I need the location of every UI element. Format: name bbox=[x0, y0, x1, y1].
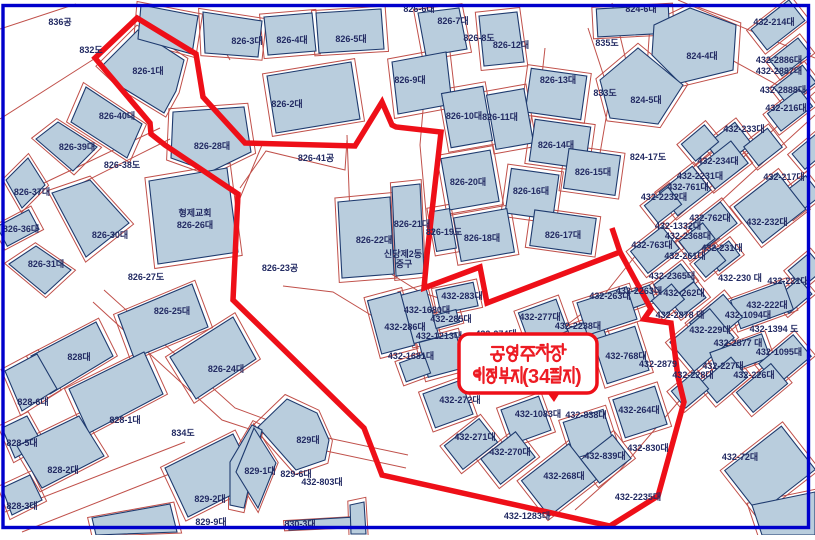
svg-text:432-268대: 432-268대 bbox=[543, 470, 584, 481]
svg-text:432-262대: 432-262대 bbox=[663, 287, 704, 298]
svg-text:432-228대: 432-228대 bbox=[672, 369, 713, 380]
svg-text:826-28대: 826-28대 bbox=[194, 140, 230, 151]
svg-text:중구: 중구 bbox=[396, 259, 413, 269]
svg-text:826-23공: 826-23공 bbox=[262, 263, 298, 273]
svg-text:432-2238대: 432-2238대 bbox=[555, 320, 601, 331]
svg-text:826-19도: 826-19도 bbox=[426, 227, 463, 237]
svg-text:826-39대: 826-39대 bbox=[59, 141, 95, 152]
svg-text:432-2231대: 432-2231대 bbox=[677, 170, 723, 181]
svg-text:432-1094대: 432-1094대 bbox=[725, 309, 771, 320]
svg-text:432-222대: 432-222대 bbox=[746, 299, 787, 310]
svg-text:826-7대: 826-7대 bbox=[437, 15, 468, 26]
svg-text:826-24대: 826-24대 bbox=[208, 363, 244, 374]
svg-text:432-1083대: 432-1083대 bbox=[515, 408, 561, 419]
svg-text:432-230 대: 432-230 대 bbox=[718, 272, 762, 283]
svg-text:826-12대: 826-12대 bbox=[493, 39, 529, 50]
svg-text:826-5대: 826-5대 bbox=[335, 33, 366, 44]
svg-text:828대: 828대 bbox=[67, 351, 90, 362]
svg-text:826-14대: 826-14대 bbox=[538, 139, 574, 150]
svg-text:834도: 834도 bbox=[171, 428, 195, 438]
svg-text:432-229대: 432-229대 bbox=[689, 324, 730, 335]
svg-text:836공: 836공 bbox=[48, 17, 71, 27]
svg-text:826-21대: 826-21대 bbox=[394, 218, 430, 229]
svg-text:432-2887대: 432-2887대 bbox=[756, 65, 802, 76]
svg-text:432-830대: 432-830대 bbox=[627, 442, 668, 453]
svg-text:826-37대: 826-37대 bbox=[14, 186, 50, 197]
svg-text:826-30대: 826-30대 bbox=[92, 229, 128, 240]
svg-text:신당제2동: 신당제2동 bbox=[384, 248, 422, 259]
svg-text:826-31대: 826-31대 bbox=[28, 258, 64, 269]
svg-text:432-283대: 432-283대 bbox=[441, 290, 482, 301]
svg-text:826-25대: 826-25대 bbox=[154, 305, 190, 316]
svg-text:432-1095대: 432-1095대 bbox=[756, 346, 802, 357]
svg-text:826-20대: 826-20대 bbox=[450, 176, 486, 187]
svg-text:432-1394 도: 432-1394 도 bbox=[750, 324, 800, 334]
svg-text:829-2대: 829-2대 bbox=[194, 493, 225, 504]
svg-text:826-10대: 826-10대 bbox=[446, 110, 482, 121]
svg-text:824-5대: 824-5대 bbox=[630, 94, 661, 105]
svg-text:826-36대: 826-36대 bbox=[3, 223, 39, 234]
svg-text:829-6대: 829-6대 bbox=[280, 468, 311, 479]
svg-text:826-22대: 826-22대 bbox=[356, 234, 392, 245]
svg-text:828-3대: 828-3대 bbox=[6, 500, 37, 511]
svg-text:826-18대: 826-18대 bbox=[464, 232, 500, 243]
svg-text:829대: 829대 bbox=[296, 434, 319, 445]
svg-text:432-2235대: 432-2235대 bbox=[615, 491, 661, 502]
svg-text:826-11대: 826-11대 bbox=[482, 111, 518, 122]
svg-text:432-233대: 432-233대 bbox=[723, 123, 764, 134]
svg-text:826-2대: 826-2대 bbox=[271, 98, 302, 109]
svg-text:432-264대: 432-264대 bbox=[618, 404, 659, 415]
svg-text:432-217대: 432-217대 bbox=[763, 171, 804, 182]
svg-text:432-272대: 432-272대 bbox=[439, 394, 480, 405]
svg-text:432-72대: 432-72대 bbox=[722, 451, 758, 462]
svg-text:432-1332대: 432-1332대 bbox=[655, 220, 701, 231]
svg-text:형제교회: 형제교회 bbox=[178, 207, 211, 218]
svg-text:432-839대: 432-839대 bbox=[584, 450, 625, 461]
svg-text:432-226대: 432-226대 bbox=[733, 369, 774, 380]
svg-text:826-40대: 826-40대 bbox=[99, 110, 135, 121]
svg-text:432-761대: 432-761대 bbox=[667, 181, 708, 192]
svg-text:432-768대: 432-768대 bbox=[605, 350, 646, 361]
svg-text:432-216대: 432-216대 bbox=[765, 102, 806, 113]
svg-text:826-16대: 826-16대 bbox=[513, 185, 549, 196]
svg-text:432-231대: 432-231대 bbox=[701, 242, 742, 253]
svg-text:826-15대: 826-15대 bbox=[575, 166, 611, 177]
svg-text:824-4대: 824-4대 bbox=[686, 50, 717, 61]
svg-text:833도: 833도 bbox=[593, 88, 617, 98]
svg-text:828-2대: 828-2대 bbox=[47, 464, 78, 475]
svg-text:432-2878 대: 432-2878 대 bbox=[656, 309, 705, 320]
svg-text:432-285대: 432-285대 bbox=[430, 313, 471, 324]
svg-text:826-13대: 826-13대 bbox=[540, 74, 576, 85]
svg-text:828-5대: 828-5대 bbox=[6, 437, 37, 448]
svg-text:826-17대: 826-17대 bbox=[545, 229, 581, 240]
svg-text:829-1대: 829-1대 bbox=[244, 465, 275, 476]
svg-text:432-838대: 432-838대 bbox=[565, 409, 606, 420]
svg-text:828-6대: 828-6대 bbox=[17, 396, 48, 407]
svg-text:826-8도: 826-8도 bbox=[463, 33, 495, 43]
svg-text:432-2888대: 432-2888대 bbox=[760, 84, 806, 95]
svg-text:826-26대: 826-26대 bbox=[177, 219, 213, 230]
svg-text:828-1대: 828-1대 bbox=[109, 414, 140, 425]
svg-text:432-2886대: 432-2886대 bbox=[756, 54, 802, 65]
svg-text:432-2232대: 432-2232대 bbox=[641, 191, 687, 202]
svg-text:826-9대: 826-9대 bbox=[394, 74, 425, 85]
svg-text:824-17도: 824-17도 bbox=[630, 152, 667, 162]
svg-text:432-261대: 432-261대 bbox=[664, 250, 705, 261]
svg-text:832도: 832도 bbox=[79, 45, 103, 55]
svg-text:826-3대: 826-3대 bbox=[231, 35, 262, 46]
svg-text:432-221대: 432-221대 bbox=[767, 275, 808, 286]
svg-text:432-270대: 432-270대 bbox=[489, 446, 530, 457]
svg-text:826-1대: 826-1대 bbox=[132, 65, 163, 76]
svg-text:826-38도: 826-38도 bbox=[104, 160, 141, 170]
svg-text:826-4대: 826-4대 bbox=[276, 34, 307, 45]
svg-text:835도: 835도 bbox=[595, 38, 619, 48]
svg-text:432-232대: 432-232대 bbox=[746, 216, 787, 227]
svg-text:432-1681대: 432-1681대 bbox=[388, 350, 434, 361]
svg-text:432-763대: 432-763대 bbox=[631, 239, 672, 250]
svg-text:432-1213대: 432-1213대 bbox=[416, 330, 462, 341]
svg-text:432-2365대: 432-2365대 bbox=[649, 270, 695, 281]
svg-text:34: 34 bbox=[528, 366, 551, 388]
svg-text:432-214대: 432-214대 bbox=[753, 16, 794, 27]
svg-text:432-271대: 432-271대 bbox=[454, 431, 495, 442]
svg-text:432-1283대: 432-1283대 bbox=[504, 510, 550, 521]
svg-text:826-41공: 826-41공 bbox=[298, 153, 334, 163]
svg-text:829-9대: 829-9대 bbox=[195, 516, 226, 527]
svg-text:): ) bbox=[575, 366, 582, 388]
svg-text:432-263대: 432-263대 bbox=[589, 290, 630, 301]
svg-text:432-234대: 432-234대 bbox=[697, 155, 738, 166]
svg-text:826-27도: 826-27도 bbox=[128, 272, 165, 282]
